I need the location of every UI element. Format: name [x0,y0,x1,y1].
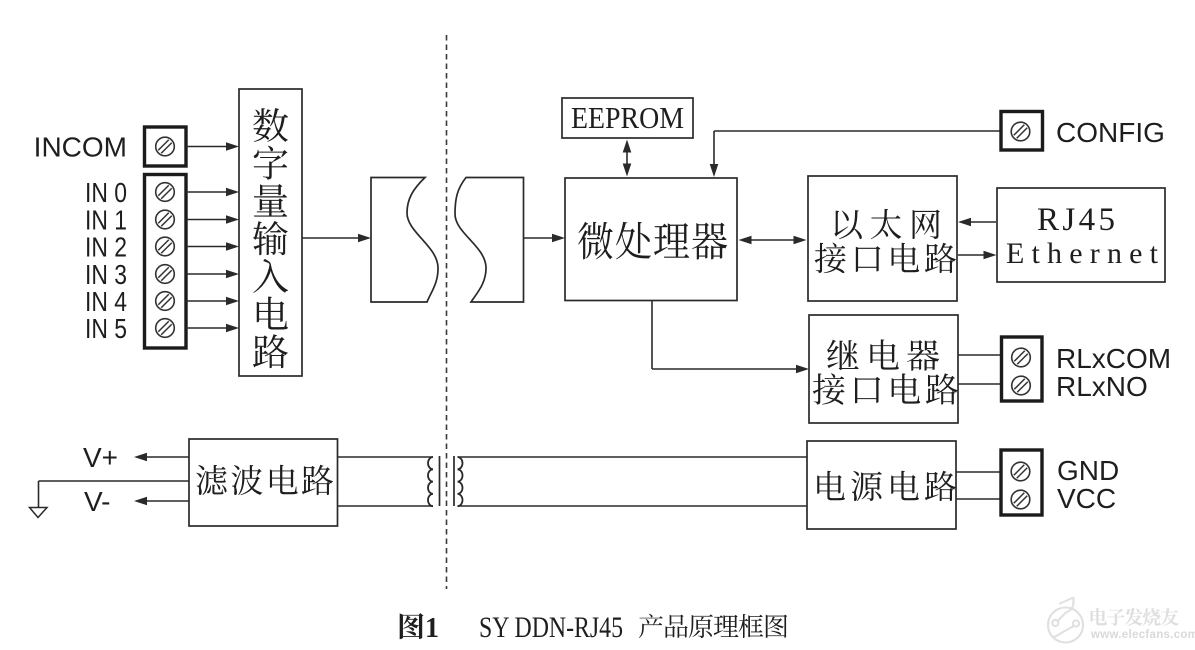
svg-text:RLxNO: RLxNO [1056,371,1148,402]
svg-text:RLxCOM: RLxCOM [1056,343,1171,374]
svg-text:www.elecfans.com: www.elecfans.com [1090,629,1195,641]
svg-text:IN 5: IN 5 [85,313,127,344]
svg-text:VCC: VCC [1057,483,1116,514]
svg-text:EEPROM: EEPROM [571,100,684,135]
svg-text:V+: V+ [83,442,118,473]
svg-text:CONFIG: CONFIG [1056,117,1165,148]
svg-text:V-: V- [84,486,110,517]
svg-text:SY DDN-RJ45: SY DDN-RJ45 [479,611,623,644]
svg-text:IN 2: IN 2 [85,232,127,263]
svg-text:1: 1 [425,613,439,644]
svg-text:IN 0: IN 0 [85,177,127,208]
svg-text:INCOM: INCOM [34,132,127,163]
svg-text:GND: GND [1057,455,1119,486]
